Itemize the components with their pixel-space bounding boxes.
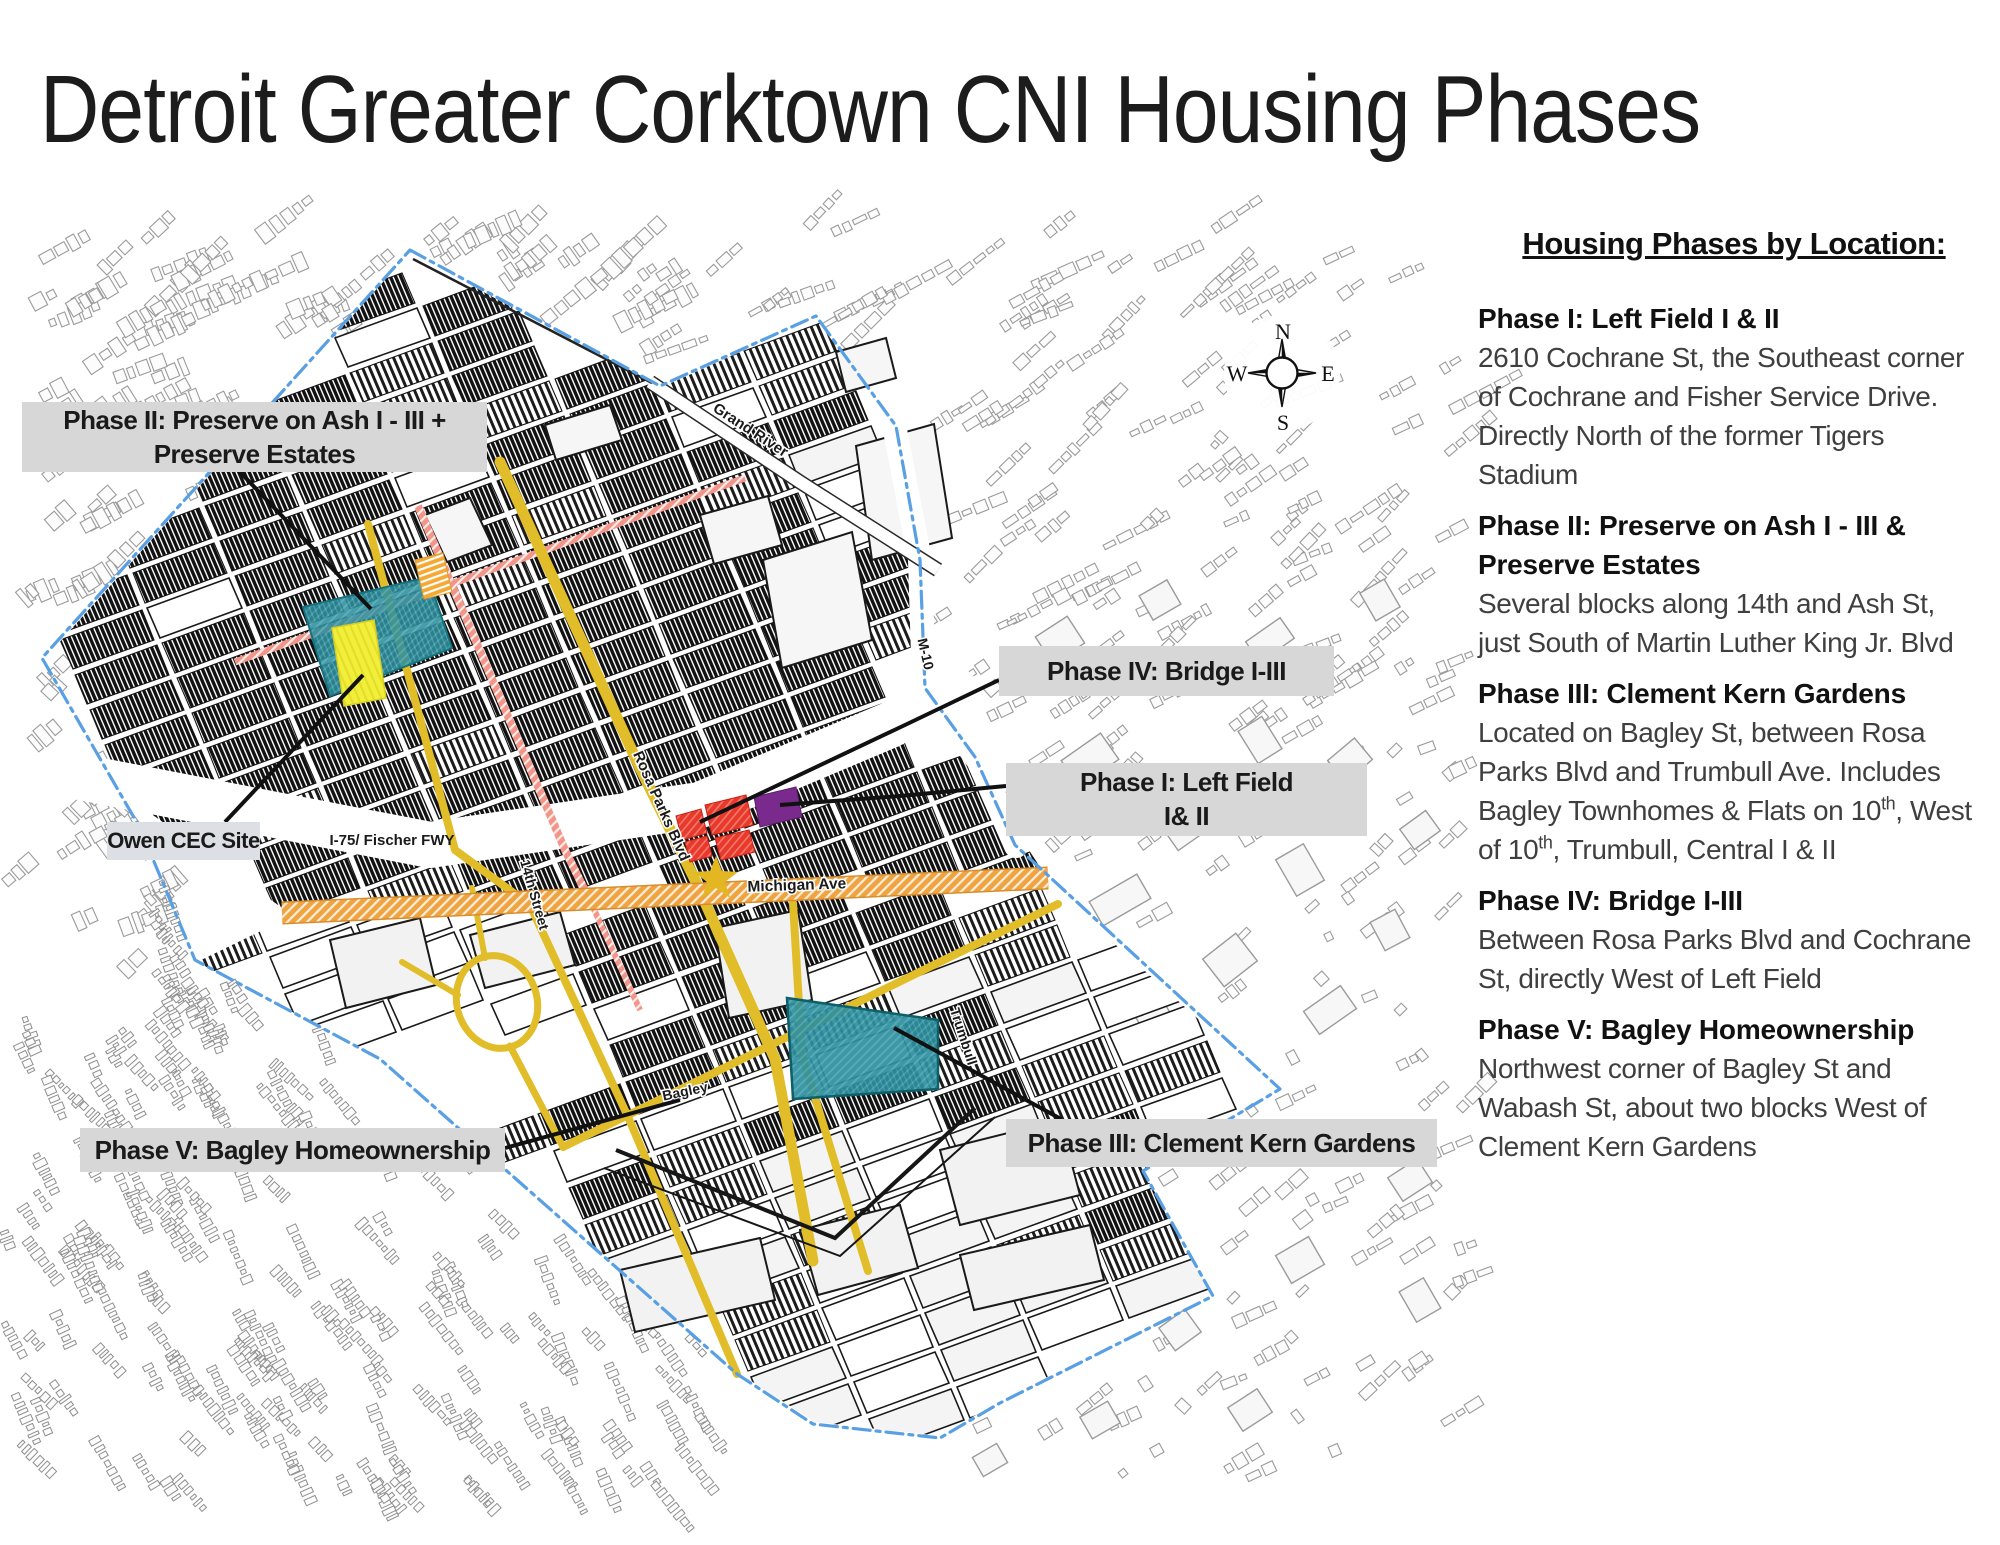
svg-text:Preserve Estates: Preserve Estates [154, 439, 356, 469]
svg-text:Michigan Ave: Michigan Ave [747, 875, 847, 895]
svg-text:Phase IV: Bridge I-III: Phase IV: Bridge I-III [1047, 656, 1286, 686]
svg-text:I-75/ Fischer FWY: I-75/ Fischer FWY [329, 832, 454, 849]
svg-text:Phase I: Left Field: Phase I: Left Field [1080, 767, 1293, 797]
svg-text:Phase II: Preserve on Ash I -: Phase II: Preserve on Ash I - III + [63, 405, 446, 435]
svg-text:N: N [1275, 319, 1291, 344]
svg-text:E: E [1321, 361, 1334, 386]
svg-text:Phase V: Bagley Homeownership: Phase V: Bagley Homeownership [95, 1135, 491, 1165]
svg-text:W: W [1227, 361, 1248, 386]
svg-text:S: S [1277, 410, 1289, 435]
svg-text:Phase III: Clement Kern Garden: Phase III: Clement Kern Gardens [1028, 1128, 1416, 1158]
svg-text:Owen CEC Site: Owen CEC Site [107, 828, 260, 853]
svg-text:I& II: I& II [1164, 801, 1209, 831]
